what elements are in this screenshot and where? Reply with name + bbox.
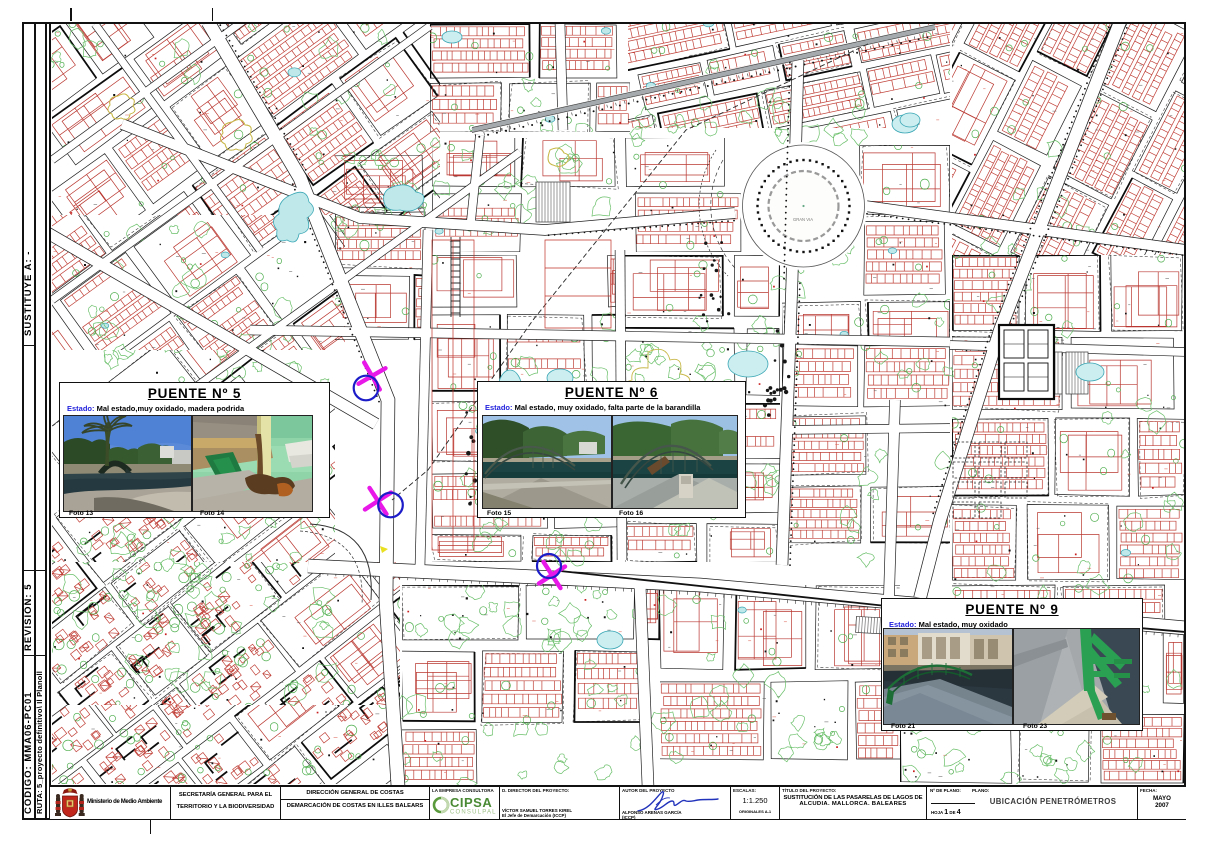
svg-text:GRAN VIA: GRAN VIA (793, 217, 813, 222)
svg-text:CIPSA: CIPSA (450, 795, 492, 810)
svg-text:CONSULPAL: CONSULPAL (450, 809, 497, 815)
